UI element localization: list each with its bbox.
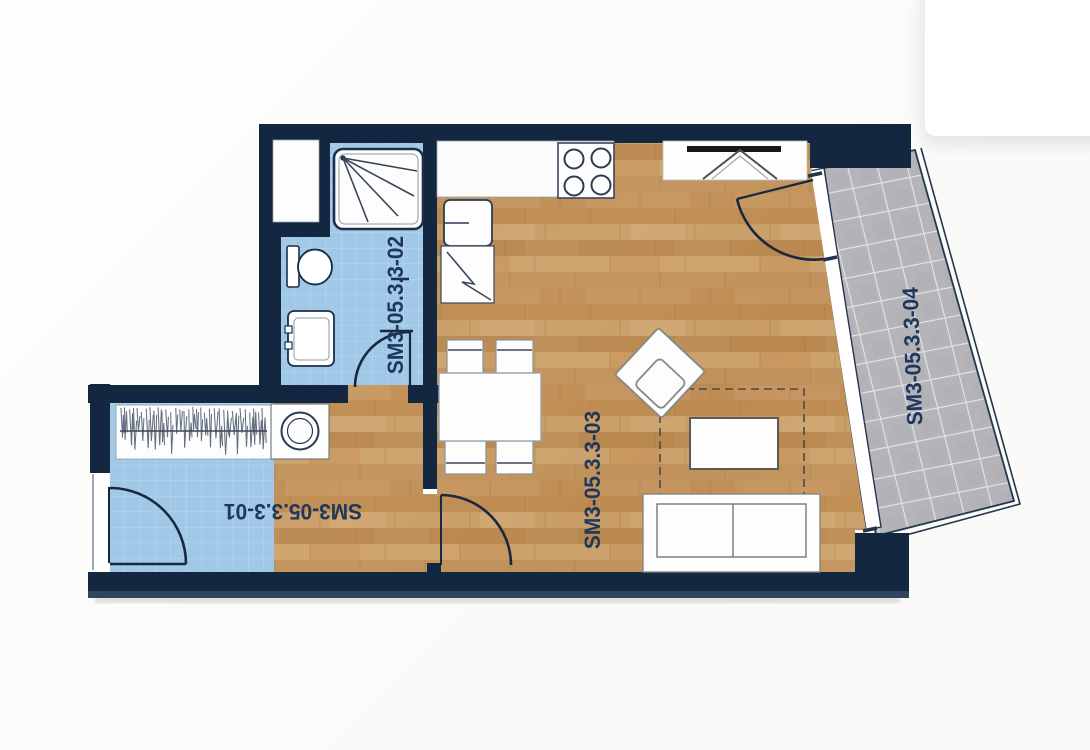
svg-text:SM3-05.3.3-03: SM3-05.3.3-03: [581, 411, 606, 549]
svg-text:SM3-05.3.3-04: SM3-05.3.3-04: [898, 287, 927, 426]
svg-text:SM3-05.3.3-01: SM3-05.3.3-01: [224, 499, 362, 524]
svg-text:SM3-05.3.3-02: SM3-05.3.3-02: [384, 236, 409, 374]
